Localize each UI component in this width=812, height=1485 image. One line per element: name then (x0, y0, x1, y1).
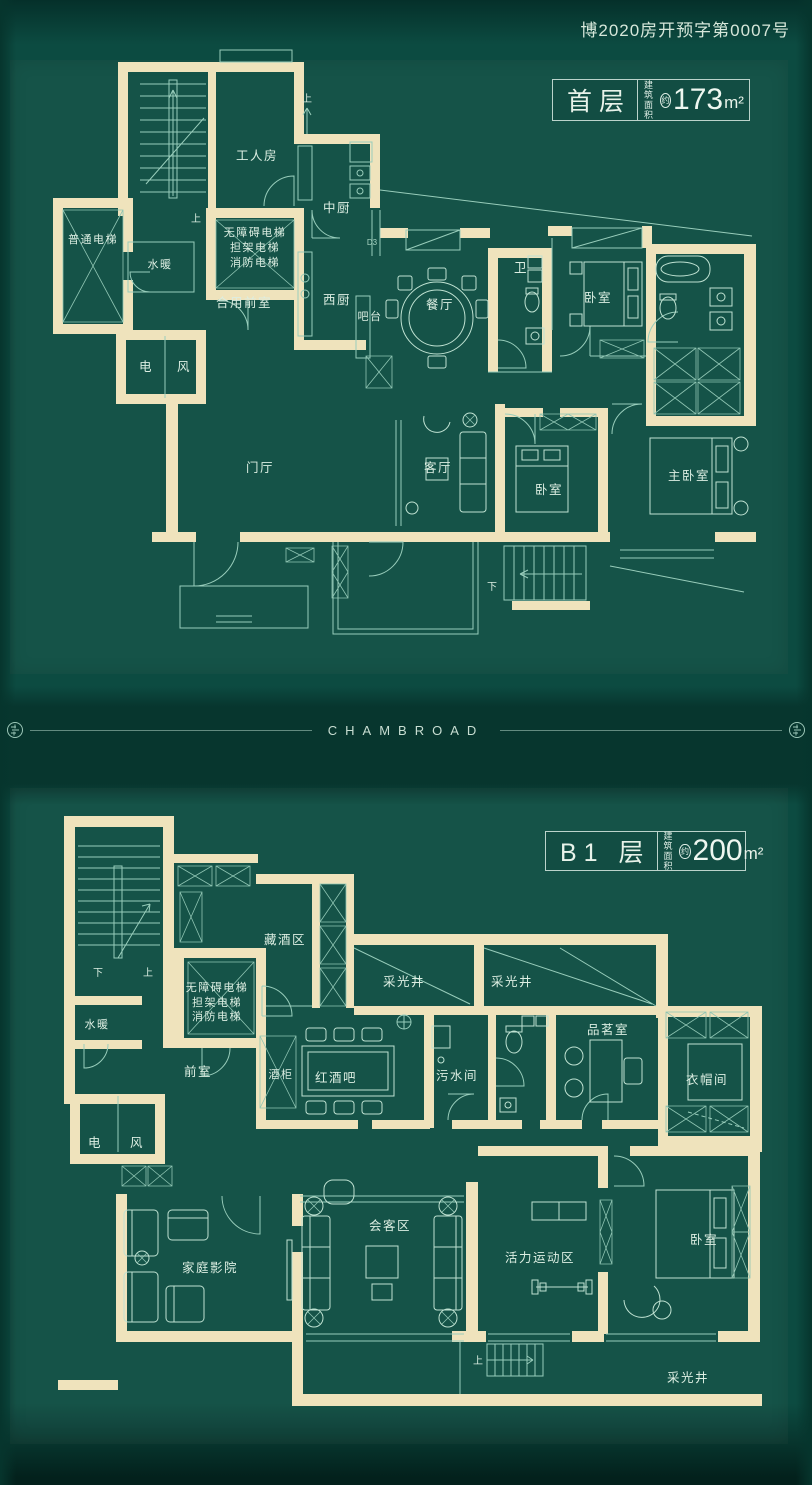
room-label-living-room: 客厅 (424, 460, 452, 475)
stair-label-up: 上 (191, 213, 201, 225)
room-label-light-well-2: 采光井 (491, 975, 533, 989)
room-label-west-kitchen: 西厨 (323, 293, 351, 307)
floorB1-area: 建筑 面积 约 200 m² (657, 832, 772, 870)
brand-divider: CHAMBROAD (0, 714, 812, 746)
room-label-front-room: 前室 (184, 1064, 212, 1079)
room-label-vent: 风 (130, 1136, 144, 1150)
area-approx-badge: 约 (660, 93, 671, 108)
room-label-master-bedroom: 主卧室 (668, 468, 710, 483)
room-label-wine-storage: 藏酒区 (264, 933, 306, 947)
room-label-entry-hall: 门厅 (246, 460, 274, 475)
floorB1-plan: 下 上 藏酒区 采光井 采光井 无障碍电梯 担架电梯 消防电梯 水暖 前室 酒柜… (0, 788, 812, 1485)
room-label-water-heating: 水暖 (148, 258, 173, 271)
room-label-bedroom-mid: 卧室 (535, 482, 563, 497)
stair-label-down: 下 (93, 968, 103, 979)
floor1-area-value: 173 (673, 83, 723, 117)
area-label-top: 建筑 (644, 80, 658, 100)
floorB1-area-prefix: 建筑 面积 (664, 831, 678, 871)
medallion-icon-right (788, 721, 806, 739)
room-label-shared-front-room: 合用前室 (216, 295, 272, 310)
floor1-title: 首层 (553, 82, 637, 118)
floorB1-area-value: 200 (693, 834, 743, 868)
room-label-elevator-1: 无障碍电梯 (224, 225, 287, 239)
room-label-wine-cabinet: 酒柜 (269, 1068, 294, 1081)
floorplan-page: 博2020房开预字第0007号 (0, 0, 812, 1485)
room-label-bedroom: 卧室 (690, 1232, 718, 1247)
stair-label-up: 上 (143, 967, 153, 979)
area-label-bottom: 面积 (644, 100, 658, 120)
room-label-elevator-1: 无障碍电梯 (186, 980, 249, 994)
room-label-elevator-3: 消防电梯 (192, 1009, 242, 1023)
room-label-mid-kitchen: 中厨 (323, 200, 351, 215)
room-label-meeting-area: 会客区 (369, 1218, 411, 1233)
room-label-tea-room: 品茗室 (587, 1022, 629, 1037)
stair-label-up-2: 上 (473, 1355, 483, 1367)
room-label-sports-area: 活力运动区 (505, 1251, 575, 1265)
floorB1-title-box: B1 层 建筑 面积 约 200 m² (545, 831, 746, 871)
divider-line-left (30, 730, 312, 731)
room-label-bedroom-top: 卧室 (584, 290, 612, 305)
floorB1-area-unit: m² (744, 844, 764, 864)
brand-name: CHAMBROAD (328, 723, 485, 738)
floor1-lines (63, 50, 752, 634)
room-label-wine-bar: 红酒吧 (315, 1070, 357, 1085)
room-label-electric: 电 (88, 1136, 102, 1150)
room-label-bathroom: 卫 (514, 261, 528, 275)
room-label-elevator-3: 消防电梯 (230, 255, 280, 269)
room-label-cloakroom: 衣帽间 (686, 1072, 728, 1087)
room-label-elevator-2: 担架电梯 (230, 240, 280, 254)
room-label-light-well-3: 采光井 (667, 1371, 709, 1385)
room-label-electric: 电 (139, 360, 153, 374)
room-label-elevator-2: 担架电梯 (192, 995, 242, 1009)
floorB1-furniture (124, 1016, 750, 1327)
floor1-area-unit-text: m² (724, 93, 744, 113)
area-label-bottom: 面积 (664, 851, 678, 871)
floorB1-title: B1 层 (546, 833, 657, 869)
room-label-sewage-room: 污水间 (436, 1069, 478, 1083)
stair-label-up-top: 上 (302, 93, 312, 105)
floor1-area: 建筑 面积 约 173 m² (637, 80, 752, 120)
medallion-icon-left (6, 721, 24, 739)
room-label-light-well-1: 采光井 (383, 975, 425, 989)
room-label-normal-elevator: 普通电梯 (68, 232, 118, 246)
room-label-water-heating: 水暖 (85, 1018, 110, 1031)
room-label-home-theater: 家庭影院 (182, 1260, 238, 1275)
room-label-worker-room: 工人房 (236, 148, 278, 163)
area-approx-badge: 约 (679, 844, 690, 859)
stair-label-down: 下 (487, 582, 497, 593)
room-label-dining-room: 餐厅 (426, 297, 454, 312)
area-label-top: 建筑 (664, 831, 678, 851)
floor1-area-prefix: 建筑 面积 (644, 80, 658, 120)
divider-line-right (500, 730, 782, 731)
room-label-vent: 风 (177, 360, 191, 374)
floor1-title-box: 首层 建筑 面积 约 173 m² (552, 79, 750, 121)
room-label-bar-counter: 吧台 (358, 309, 383, 323)
door-code-label: D3 (367, 238, 378, 247)
